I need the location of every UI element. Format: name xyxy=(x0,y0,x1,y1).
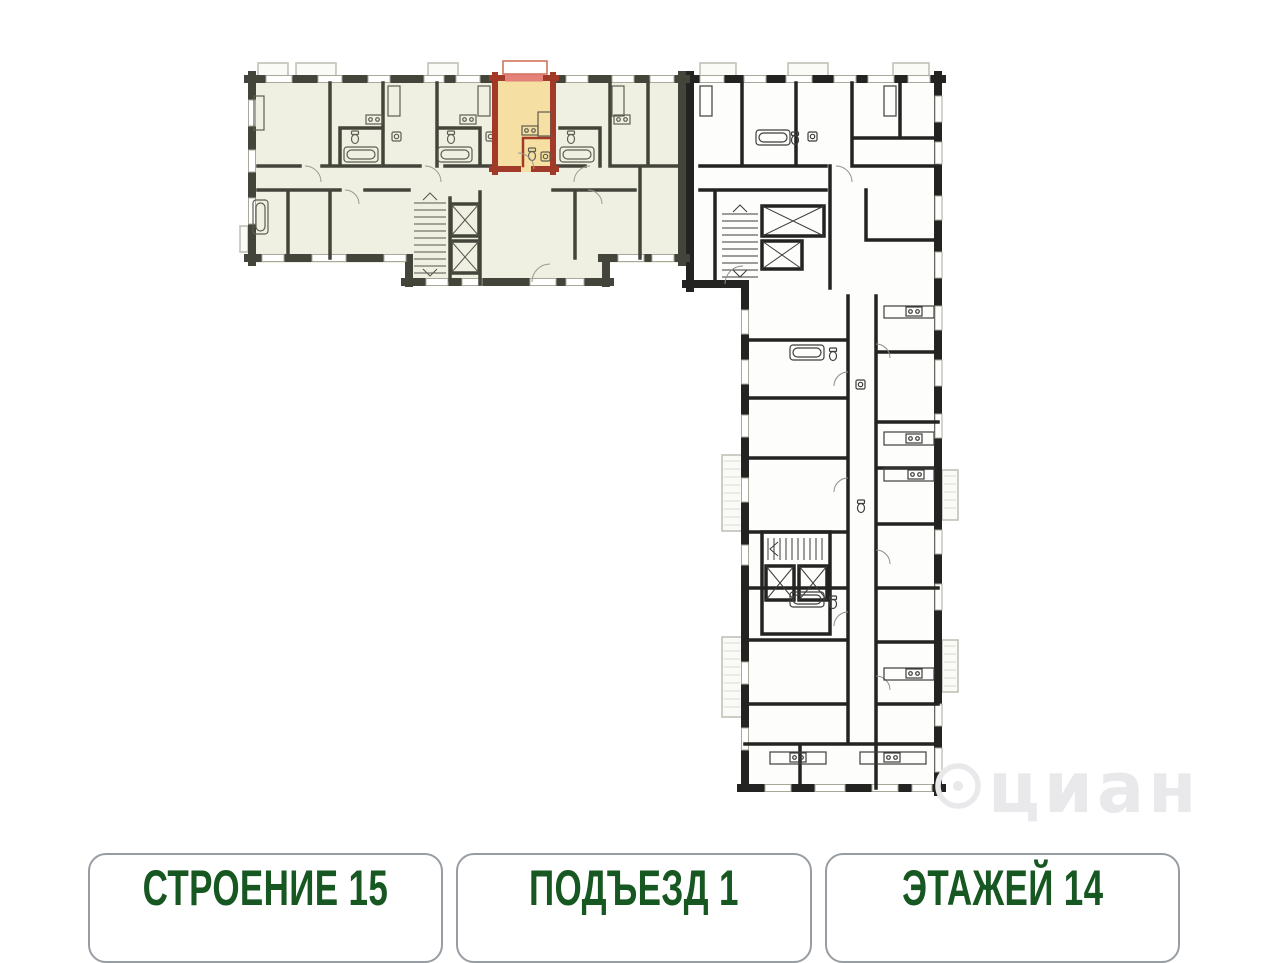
floor-plan-svg: циан xyxy=(0,0,1280,830)
entrance-selector-chip[interactable]: ПОДЪЕЗД 1 xyxy=(456,853,811,963)
floors-selector-chip[interactable]: ЭТАЖЕЙ 14 xyxy=(825,853,1180,963)
balcony xyxy=(722,455,742,717)
watermark-text: циан xyxy=(988,747,1201,829)
floors-label: ЭТАЖЕЙ 14 xyxy=(902,863,1103,913)
highlighted-apartment[interactable] xyxy=(492,61,556,172)
plan-selector-bar: СТРОЕНИЕ 15 ПОДЪЕЗД 1 ЭТАЖЕЙ 14 xyxy=(0,853,1280,963)
cian-watermark: циан xyxy=(938,747,1201,829)
building-label: СТРОЕНИЕ 15 xyxy=(143,863,389,913)
selected-section[interactable] xyxy=(240,63,686,286)
balcony xyxy=(942,470,958,692)
floor-plan: циан xyxy=(0,0,1280,830)
floor-plan-page: { "plan": { "watermark": "циан" }, "foot… xyxy=(0,0,1280,928)
entrance-label: ПОДЪЕЗД 1 xyxy=(529,863,739,913)
unselected-section xyxy=(686,63,958,792)
building-selector-chip[interactable]: СТРОЕНИЕ 15 xyxy=(88,853,443,963)
